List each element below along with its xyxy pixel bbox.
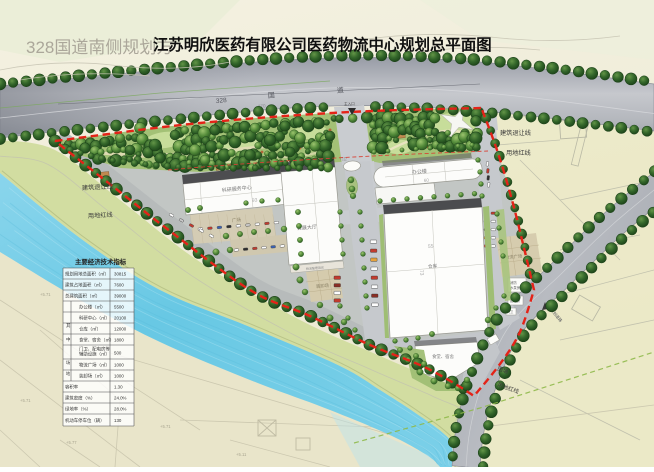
svg-text:江苏明欣医药有限公司医药物流中心规划总平面图: 江苏明欣医药有限公司医药物流中心规划总平面图 <box>153 35 492 54</box>
svg-text:国: 国 <box>267 91 275 100</box>
svg-text:用地红线: 用地红线 <box>506 149 531 157</box>
svg-text:用地红线: 用地红线 <box>88 211 113 220</box>
svg-text:+5.71: +5.71 <box>160 424 171 429</box>
svg-text:130: 130 <box>114 418 122 423</box>
svg-text:39000: 39000 <box>114 294 127 299</box>
svg-text:55: 55 <box>428 244 434 250</box>
svg-text:办公楼: 办公楼 <box>412 168 428 176</box>
svg-text:500: 500 <box>114 351 122 356</box>
svg-text:主要经济技术指标: 主要经济技术指标 <box>75 257 127 266</box>
svg-text:仓库（㎡）: 仓库（㎡） <box>79 326 101 333</box>
svg-text:+5.11: +5.11 <box>236 452 247 457</box>
svg-text:5500: 5500 <box>114 305 124 310</box>
svg-text:60: 60 <box>424 178 430 183</box>
svg-text:门卫: 门卫 <box>340 156 347 161</box>
svg-text:消防: 消防 <box>510 280 517 285</box>
svg-text:物流广场（㎡）: 物流广场（㎡） <box>79 362 110 369</box>
svg-text:场: 场 <box>66 359 70 366</box>
svg-text:+5.77: +5.77 <box>66 440 77 445</box>
svg-text:7600: 7600 <box>114 283 124 288</box>
svg-text:机动车停车位（辆）: 机动车停车位（辆） <box>65 417 105 424</box>
svg-text:30815: 30815 <box>114 272 127 277</box>
svg-text:水泵房: 水泵房 <box>510 285 521 290</box>
svg-text:+5.71: +5.71 <box>20 398 31 403</box>
svg-text:辅助设施（㎡）: 辅助设施（㎡） <box>79 351 110 358</box>
svg-text:+5.71: +5.71 <box>40 292 51 297</box>
svg-text:20100: 20100 <box>114 316 127 321</box>
svg-text:装卸场（㎡）: 装卸场（㎡） <box>79 373 105 380</box>
svg-text:容积率: 容积率 <box>65 384 79 391</box>
svg-text:建筑退让线: 建筑退让线 <box>82 182 113 192</box>
svg-text:28.0%: 28.0% <box>114 407 127 412</box>
svg-text:建筑占地面积（㎡）: 建筑占地面积（㎡） <box>65 282 105 289</box>
svg-text:建筑退让线: 建筑退让线 <box>500 129 531 137</box>
svg-text:1800: 1800 <box>114 338 124 343</box>
svg-text:食堂、宿舍: 食堂、宿舍 <box>432 353 455 360</box>
svg-text:规划用地总面积（㎡）: 规划用地总面积（㎡） <box>65 271 109 278</box>
svg-text:绿地率（%）: 绿地率（%） <box>65 406 91 413</box>
svg-text:73: 73 <box>418 270 424 276</box>
svg-text:12000: 12000 <box>114 327 127 332</box>
svg-text:328国道南侧规划方: 328国道南侧规划方 <box>26 38 173 57</box>
svg-text:1000: 1000 <box>114 374 124 379</box>
svg-text:主入口: 主入口 <box>344 101 355 106</box>
svg-text:1000: 1000 <box>114 363 124 368</box>
svg-text:办公楼（㎡）: 办公楼（㎡） <box>79 304 105 311</box>
svg-text:总建筑面积（㎡）: 总建筑面积（㎡） <box>65 293 100 300</box>
svg-text:建筑密度（%）: 建筑密度（%） <box>65 395 95 402</box>
svg-text:食堂、宿舍（㎡）: 食堂、宿舍（㎡） <box>79 337 114 344</box>
svg-text:328: 328 <box>216 97 228 105</box>
svg-text:中: 中 <box>66 336 70 343</box>
svg-text:93: 93 <box>252 197 258 204</box>
svg-text:24.0%: 24.0% <box>114 396 127 401</box>
svg-text:1.30: 1.30 <box>114 385 123 390</box>
svg-text:科研中心（㎡）: 科研中心（㎡） <box>79 315 110 322</box>
